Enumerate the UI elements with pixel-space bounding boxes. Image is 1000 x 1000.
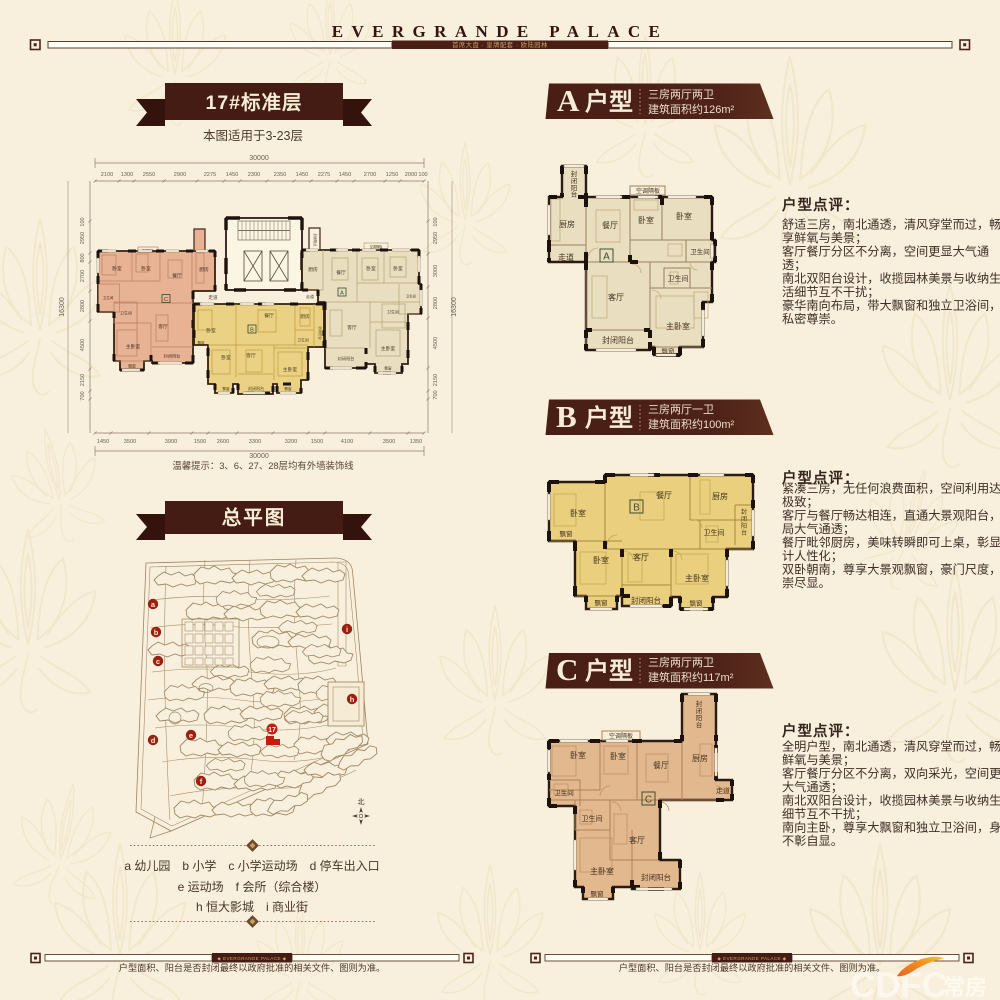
svg-text:卫生间: 卫生间 [554, 788, 574, 797]
svg-text:台: 台 [571, 190, 578, 199]
svg-text:主卧室: 主卧室 [590, 866, 614, 876]
svg-text:3500: 3500 [124, 439, 136, 445]
svg-text:客厅: 客厅 [629, 835, 645, 845]
svg-text:e 运动场 f 会所（综合楼）: e 运动场 f 会所（综合楼） [178, 879, 327, 894]
svg-text:C: C [645, 795, 652, 806]
svg-text:双卧朝南，尊享大景观飘窗，豪门尺度，尊: 双卧朝南，尊享大景观飘窗，豪门尺度，尊 [782, 562, 1000, 577]
svg-text:100: 100 [418, 172, 427, 178]
svg-text:三房两厅两卫: 三房两厅两卫 [648, 656, 714, 669]
svg-text:卫生间: 卫生间 [690, 247, 710, 256]
svg-text:客厅: 客厅 [347, 324, 357, 331]
svg-text:空调隔板: 空调隔板 [636, 187, 660, 195]
svg-text:封闭阳台: 封闭阳台 [164, 353, 181, 360]
svg-text:1450: 1450 [296, 172, 308, 178]
svg-text:常房: 常房 [943, 975, 987, 1000]
svg-text:细节互不干扰；: 细节互不干扰； [782, 807, 867, 821]
svg-text:户型: 户型 [585, 657, 633, 685]
svg-text:主卧室: 主卧室 [126, 343, 141, 350]
svg-text:1300: 1300 [121, 172, 133, 178]
svg-text:客厅与餐厅畅达相连，直通大景观阳台，格: 客厅与餐厅畅达相连，直通大景观阳台，格 [782, 508, 1000, 523]
svg-text:温馨提示：3、6、27、28层均有外墙装饰线: 温馨提示：3、6、27、28层均有外墙装饰线 [172, 460, 354, 471]
svg-text:享鲜氧与美景；: 享鲜氧与美景； [782, 230, 867, 245]
svg-text:卧室: 卧室 [366, 265, 376, 272]
svg-text:紧凑三房，无任何浪费面积，空间利用达到: 紧凑三房，无任何浪费面积，空间利用达到 [782, 481, 1000, 496]
svg-text:2275: 2275 [318, 172, 330, 178]
svg-text:2000: 2000 [405, 172, 417, 178]
svg-text:客厅: 客厅 [158, 323, 168, 330]
svg-text:16300: 16300 [59, 297, 66, 317]
svg-text:C: C [164, 297, 168, 303]
svg-text:B: B [556, 399, 577, 434]
svg-text:100: 100 [80, 217, 86, 226]
svg-text:总平图: 总平图 [222, 506, 287, 529]
svg-text:卧室: 卧室 [221, 354, 231, 361]
svg-text:客厅餐厅分区不分离，双向采光，空间更显: 客厅餐厅分区不分离，双向采光，空间更显 [782, 766, 1000, 781]
svg-text:1450: 1450 [226, 172, 238, 178]
svg-text:100: 100 [433, 217, 439, 226]
svg-text:2150: 2150 [80, 374, 86, 386]
svg-text:2950: 2950 [433, 232, 439, 244]
svg-text:户型: 户型 [585, 404, 633, 432]
svg-text:1450: 1450 [97, 439, 109, 445]
svg-text:舒适三房，南北通透，清风穿堂而过，畅: 舒适三房，南北通透，清风穿堂而过，畅 [782, 217, 1000, 232]
svg-text:餐厅: 餐厅 [172, 272, 182, 279]
svg-text:飘窗: 飘窗 [284, 386, 292, 391]
svg-text:2800: 2800 [433, 297, 439, 309]
svg-text:B: B [633, 503, 640, 514]
svg-text:1500: 1500 [311, 439, 323, 445]
svg-text:闭: 闭 [741, 515, 747, 523]
svg-text:闭: 闭 [696, 707, 703, 715]
svg-text:封闭阳台: 封闭阳台 [602, 335, 634, 345]
svg-text:户型面积、阳台是否封闭最终以政府批准的相关文件、图则为准。: 户型面积、阳台是否封闭最终以政府批准的相关文件、图则为准。 [619, 962, 885, 973]
svg-text:走道: 走道 [208, 294, 218, 301]
svg-text:阳: 阳 [741, 522, 747, 530]
svg-text:飘窗: 飘窗 [384, 366, 392, 371]
svg-text:b: b [154, 628, 159, 637]
svg-text:不彰自显。: 不彰自显。 [782, 833, 843, 848]
svg-text:厨房: 厨房 [300, 313, 310, 320]
svg-text:餐厅: 餐厅 [336, 269, 346, 276]
svg-text:客厅: 客厅 [246, 352, 256, 359]
svg-text:CDFC: CDFC [850, 966, 947, 1000]
svg-text:3200: 3200 [285, 439, 297, 445]
svg-text:C: C [556, 652, 578, 687]
svg-text:主卧室: 主卧室 [685, 573, 709, 583]
svg-text:B: B [250, 328, 254, 334]
svg-text:厨房: 厨房 [712, 491, 728, 501]
svg-text:南向主卧，尊享大飘窗和独立卫浴间，身份: 南向主卧，尊享大飘窗和独立卫浴间，身份 [782, 820, 1000, 835]
svg-text:私密尊崇。: 私密尊崇。 [782, 311, 843, 326]
svg-text:◆ EVERGRANDE PALACE ◆: ◆ EVERGRANDE PALACE ◆ [717, 956, 786, 961]
svg-text:餐厅: 餐厅 [656, 491, 672, 500]
svg-text:走道: 走道 [306, 293, 314, 299]
svg-text:透；: 透； [782, 258, 806, 272]
svg-text:2800: 2800 [80, 300, 86, 312]
svg-text:16300: 16300 [451, 297, 458, 317]
svg-text:卫生间: 卫生间 [406, 294, 417, 299]
svg-text:卧室: 卧室 [112, 265, 122, 272]
svg-text:卧室: 卧室 [570, 508, 586, 518]
svg-text:A: A [340, 291, 344, 297]
svg-text:i: i [346, 625, 348, 634]
svg-text:h: h [350, 695, 355, 704]
svg-text:鲜氧与美景；: 鲜氧与美景； [782, 753, 855, 767]
svg-text:客厅餐厅分区不分离，空间更显大气通: 客厅餐厅分区不分离，空间更显大气通 [782, 244, 989, 259]
svg-text:h 恒大影城 i 商业街: h 恒大影城 i 商业街 [196, 899, 308, 914]
svg-text:活细节互不干扰；: 活细节互不干扰； [782, 285, 880, 299]
svg-text:客厅: 客厅 [633, 552, 649, 562]
svg-text:封: 封 [571, 169, 578, 178]
svg-text:三房两厅一卫: 三房两厅一卫 [648, 403, 714, 416]
svg-text:3300: 3300 [249, 439, 261, 445]
svg-text:2600: 2600 [217, 439, 229, 445]
svg-text:走道: 走道 [558, 252, 574, 262]
svg-text:2700: 2700 [364, 172, 376, 178]
svg-text:崇尽显。: 崇尽显。 [782, 576, 831, 590]
svg-text:卫生间: 卫生间 [103, 295, 114, 300]
svg-text:A: A [603, 252, 610, 263]
svg-text:建筑面积约126m²: 建筑面积约126m² [648, 102, 735, 116]
svg-text:4500: 4500 [433, 337, 439, 349]
svg-text:闭: 闭 [571, 177, 578, 185]
svg-text:1450: 1450 [339, 172, 351, 178]
svg-text:卧室: 卧室 [393, 265, 403, 272]
svg-text:4500: 4500 [80, 339, 86, 351]
svg-text:台: 台 [741, 529, 747, 537]
svg-text:卧室: 卧室 [676, 211, 692, 221]
svg-text:南北双阳台设计，收揽园林美景与收纳生活: 南北双阳台设计，收揽园林美景与收纳生活 [782, 793, 1000, 808]
svg-text:EVERGRANDE PALACE: EVERGRANDE PALACE [332, 22, 669, 41]
svg-text:17#标准层: 17#标准层 [205, 92, 302, 114]
svg-text:3000: 3000 [433, 265, 439, 277]
svg-text:阳: 阳 [696, 713, 703, 722]
svg-text:空调隔板: 空调隔板 [609, 732, 633, 740]
svg-text:北: 北 [358, 798, 365, 806]
svg-text:主卧室: 主卧室 [666, 321, 690, 331]
svg-text:卫生间: 卫生间 [582, 814, 603, 823]
svg-text:2950: 2950 [80, 232, 86, 244]
svg-text:局大气通透；: 局大气通透； [782, 521, 855, 536]
svg-text:4100: 4100 [341, 439, 353, 445]
svg-text:卧室: 卧室 [141, 265, 151, 272]
svg-text:走道: 走道 [716, 786, 730, 795]
svg-text:800: 800 [80, 253, 86, 262]
svg-text:封: 封 [696, 699, 703, 708]
svg-text:飘窗: 飘窗 [690, 599, 703, 608]
svg-text:2275: 2275 [204, 172, 216, 178]
svg-text:e: e [189, 731, 193, 740]
svg-text:卧室: 卧室 [570, 750, 586, 760]
svg-text:卧室: 卧室 [610, 751, 626, 761]
svg-text:2100: 2100 [101, 172, 113, 178]
svg-text:餐厅: 餐厅 [264, 312, 274, 319]
svg-text:1500: 1500 [194, 439, 206, 445]
svg-text:极致；: 极致； [782, 495, 819, 509]
svg-text:封闭阳台: 封闭阳台 [631, 595, 661, 605]
svg-text:厨房: 厨房 [692, 753, 708, 763]
svg-text:卫生间: 卫生间 [704, 528, 725, 537]
svg-text:本图适用于3-23层: 本图适用于3-23层 [203, 129, 303, 143]
svg-text:卫生间: 卫生间 [297, 338, 309, 343]
svg-text:30000: 30000 [249, 453, 269, 460]
svg-text:封闭阳台: 封闭阳台 [318, 326, 323, 340]
svg-text:大气通透；: 大气通透； [782, 779, 843, 794]
svg-text:◆ EVERGRANDE PALACE ◆: ◆ EVERGRANDE PALACE ◆ [217, 956, 286, 961]
svg-text:空调隔板: 空调隔板 [370, 244, 384, 249]
svg-text:卧室: 卧室 [638, 215, 654, 225]
svg-text:卧室: 卧室 [206, 327, 216, 334]
svg-text:豪华南向布局，带大飘窗和独立卫浴间，: 豪华南向布局，带大飘窗和独立卫浴间， [782, 298, 1000, 313]
svg-text:2300: 2300 [248, 172, 260, 178]
svg-text:三房两厅两卫: 三房两厅两卫 [648, 88, 714, 101]
svg-text:封闭阳台: 封闭阳台 [338, 355, 355, 362]
svg-text:3900: 3900 [165, 439, 177, 445]
svg-text:飘窗: 飘窗 [591, 889, 604, 898]
svg-text:主卧室: 主卧室 [381, 345, 396, 352]
svg-text:飘窗: 飘窗 [560, 529, 573, 538]
svg-text:d: d [151, 736, 156, 745]
svg-text:卫生间: 卫生间 [120, 310, 132, 316]
svg-text:餐厅: 餐厅 [653, 761, 669, 770]
svg-text:客厅: 客厅 [608, 292, 624, 302]
svg-text:卧室: 卧室 [593, 555, 609, 565]
svg-text:户型点评：: 户型点评： [782, 196, 860, 214]
svg-text:3500: 3500 [383, 439, 395, 445]
svg-text:户型点评：: 户型点评： [782, 722, 860, 740]
svg-text:建筑面积约117m²: 建筑面积约117m² [648, 670, 734, 684]
svg-text:c: c [156, 657, 160, 666]
svg-text:厨房: 厨房 [199, 266, 209, 273]
svg-text:卫生间: 卫生间 [668, 274, 689, 283]
svg-text:700: 700 [80, 391, 86, 400]
svg-text:2700: 2700 [80, 270, 86, 282]
svg-text:A: A [557, 83, 580, 118]
svg-text:1250: 1250 [386, 172, 398, 178]
svg-text:飘窗: 飘窗 [128, 364, 136, 369]
svg-text:主卧室: 主卧室 [283, 366, 298, 373]
svg-text:台: 台 [696, 720, 703, 729]
svg-text:飘窗: 飘窗 [222, 386, 230, 391]
svg-text:餐厅毗邻厨房，美味转瞬即可上桌，彰显设: 餐厅毗邻厨房，美味转瞬即可上桌，彰显设 [782, 535, 1000, 550]
svg-text:户型: 户型 [585, 88, 633, 116]
svg-text:a 幼儿园 b 小学 c 小学运动场 d 停车出入口: a 幼儿园 b 小学 c 小学运动场 d 停车出入口 [124, 858, 379, 873]
svg-text:17: 17 [268, 727, 276, 734]
svg-text:封: 封 [741, 508, 747, 516]
svg-text:2350: 2350 [274, 172, 286, 178]
svg-text:计人性化；: 计人性化； [782, 549, 843, 563]
svg-text:飘窗: 飘窗 [198, 340, 205, 345]
svg-text:南北双阳台设计，收揽园林美景与收纳生: 南北双阳台设计，收揽园林美景与收纳生 [782, 271, 1000, 286]
svg-text:700: 700 [433, 390, 439, 399]
svg-text:飘窗: 飘窗 [595, 598, 608, 607]
svg-text:建筑面积约100m²: 建筑面积约100m² [648, 417, 735, 431]
svg-text:1350: 1350 [410, 439, 422, 445]
svg-text:卫生间: 卫生间 [387, 309, 399, 315]
svg-text:2550: 2550 [143, 172, 155, 178]
svg-text:2900: 2900 [174, 172, 186, 178]
svg-text:封闭阳台: 封闭阳台 [641, 872, 671, 882]
svg-text:厨房: 厨房 [559, 219, 575, 229]
svg-text:餐厅: 餐厅 [602, 221, 618, 230]
svg-text:30000: 30000 [249, 155, 269, 162]
svg-text:厨房: 厨房 [308, 266, 318, 273]
svg-text:封闭阳台: 封闭阳台 [248, 385, 264, 391]
svg-text:首席大盘 · 皇牌配套 · 欧陆园林: 首席大盘 · 皇牌配套 · 欧陆园林 [452, 40, 548, 49]
svg-text:封闭阳台: 封闭阳台 [313, 234, 318, 247]
svg-text:户型面积、阳台是否封闭最终以政府批准的相关文件、图则为准。: 户型面积、阳台是否封闭最终以政府批准的相关文件、图则为准。 [119, 962, 385, 973]
svg-text:全明户型，南北通透，清风穿堂而过，畅享: 全明户型，南北通透，清风穿堂而过，畅享 [782, 739, 1000, 754]
svg-text:2150: 2150 [433, 374, 439, 386]
